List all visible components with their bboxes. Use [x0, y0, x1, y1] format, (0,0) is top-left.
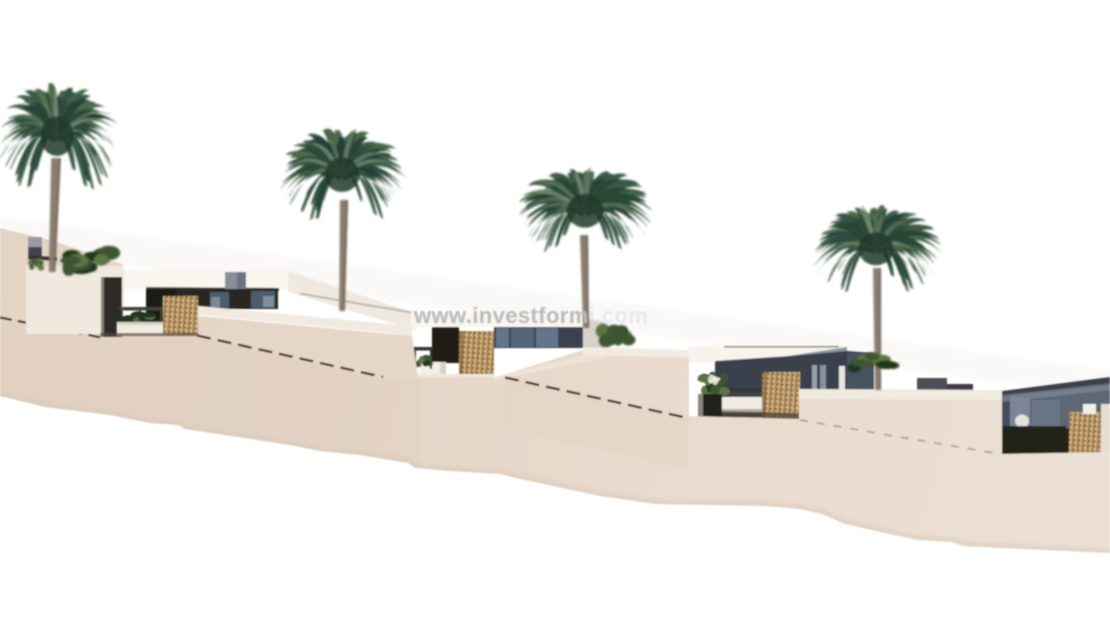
- svg-text:www.investformi.com: www.investformi.com: [413, 303, 648, 328]
